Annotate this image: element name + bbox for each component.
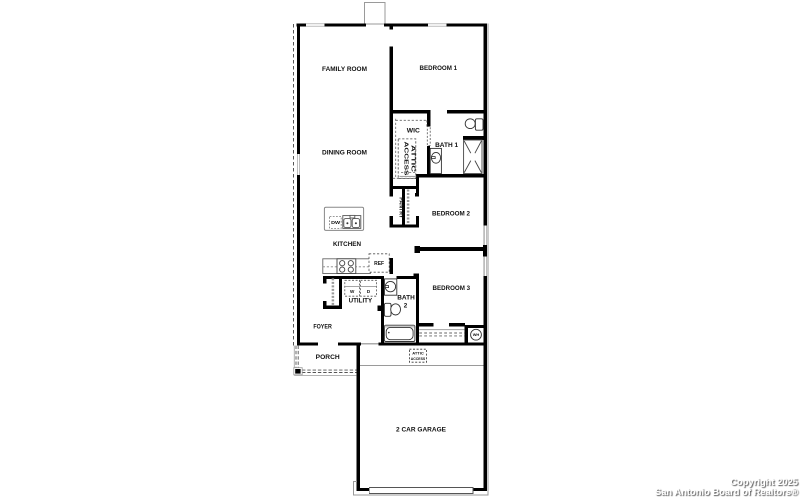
svg-text:DINING ROOM: DINING ROOM [322, 150, 367, 157]
svg-text:UTILITY: UTILITY [349, 298, 373, 305]
svg-text:BEDROOM 2: BEDROOM 2 [432, 210, 470, 217]
svg-text:PANTRY: PANTRY [397, 197, 403, 218]
svg-text:ATTIC: ATTIC [412, 352, 424, 356]
svg-text:BATH: BATH [397, 295, 415, 302]
svg-text:PORCH: PORCH [316, 354, 340, 361]
svg-text:ATTIC: ATTIC [410, 145, 416, 172]
svg-text:ACCESS: ACCESS [403, 142, 409, 177]
svg-text:BEDROOM 3: BEDROOM 3 [433, 285, 471, 292]
svg-text:KITCHEN: KITCHEN [333, 241, 361, 248]
svg-text:W: W [350, 289, 355, 294]
svg-text:2: 2 [404, 302, 408, 309]
svg-text:ACCESS: ACCESS [411, 357, 426, 361]
svg-text:FOYER: FOYER [313, 324, 332, 331]
svg-text:WH: WH [473, 332, 480, 337]
svg-text:BEDROOM 1: BEDROOM 1 [420, 65, 458, 72]
svg-text:WIC: WIC [407, 129, 421, 135]
svg-text:FAMILY ROOM: FAMILY ROOM [322, 66, 367, 73]
svg-text:REF: REF [374, 261, 384, 267]
svg-text:BATH 1: BATH 1 [435, 142, 459, 149]
svg-text:DW: DW [331, 220, 341, 225]
svg-text:2 CAR GARAGE: 2 CAR GARAGE [396, 426, 447, 433]
